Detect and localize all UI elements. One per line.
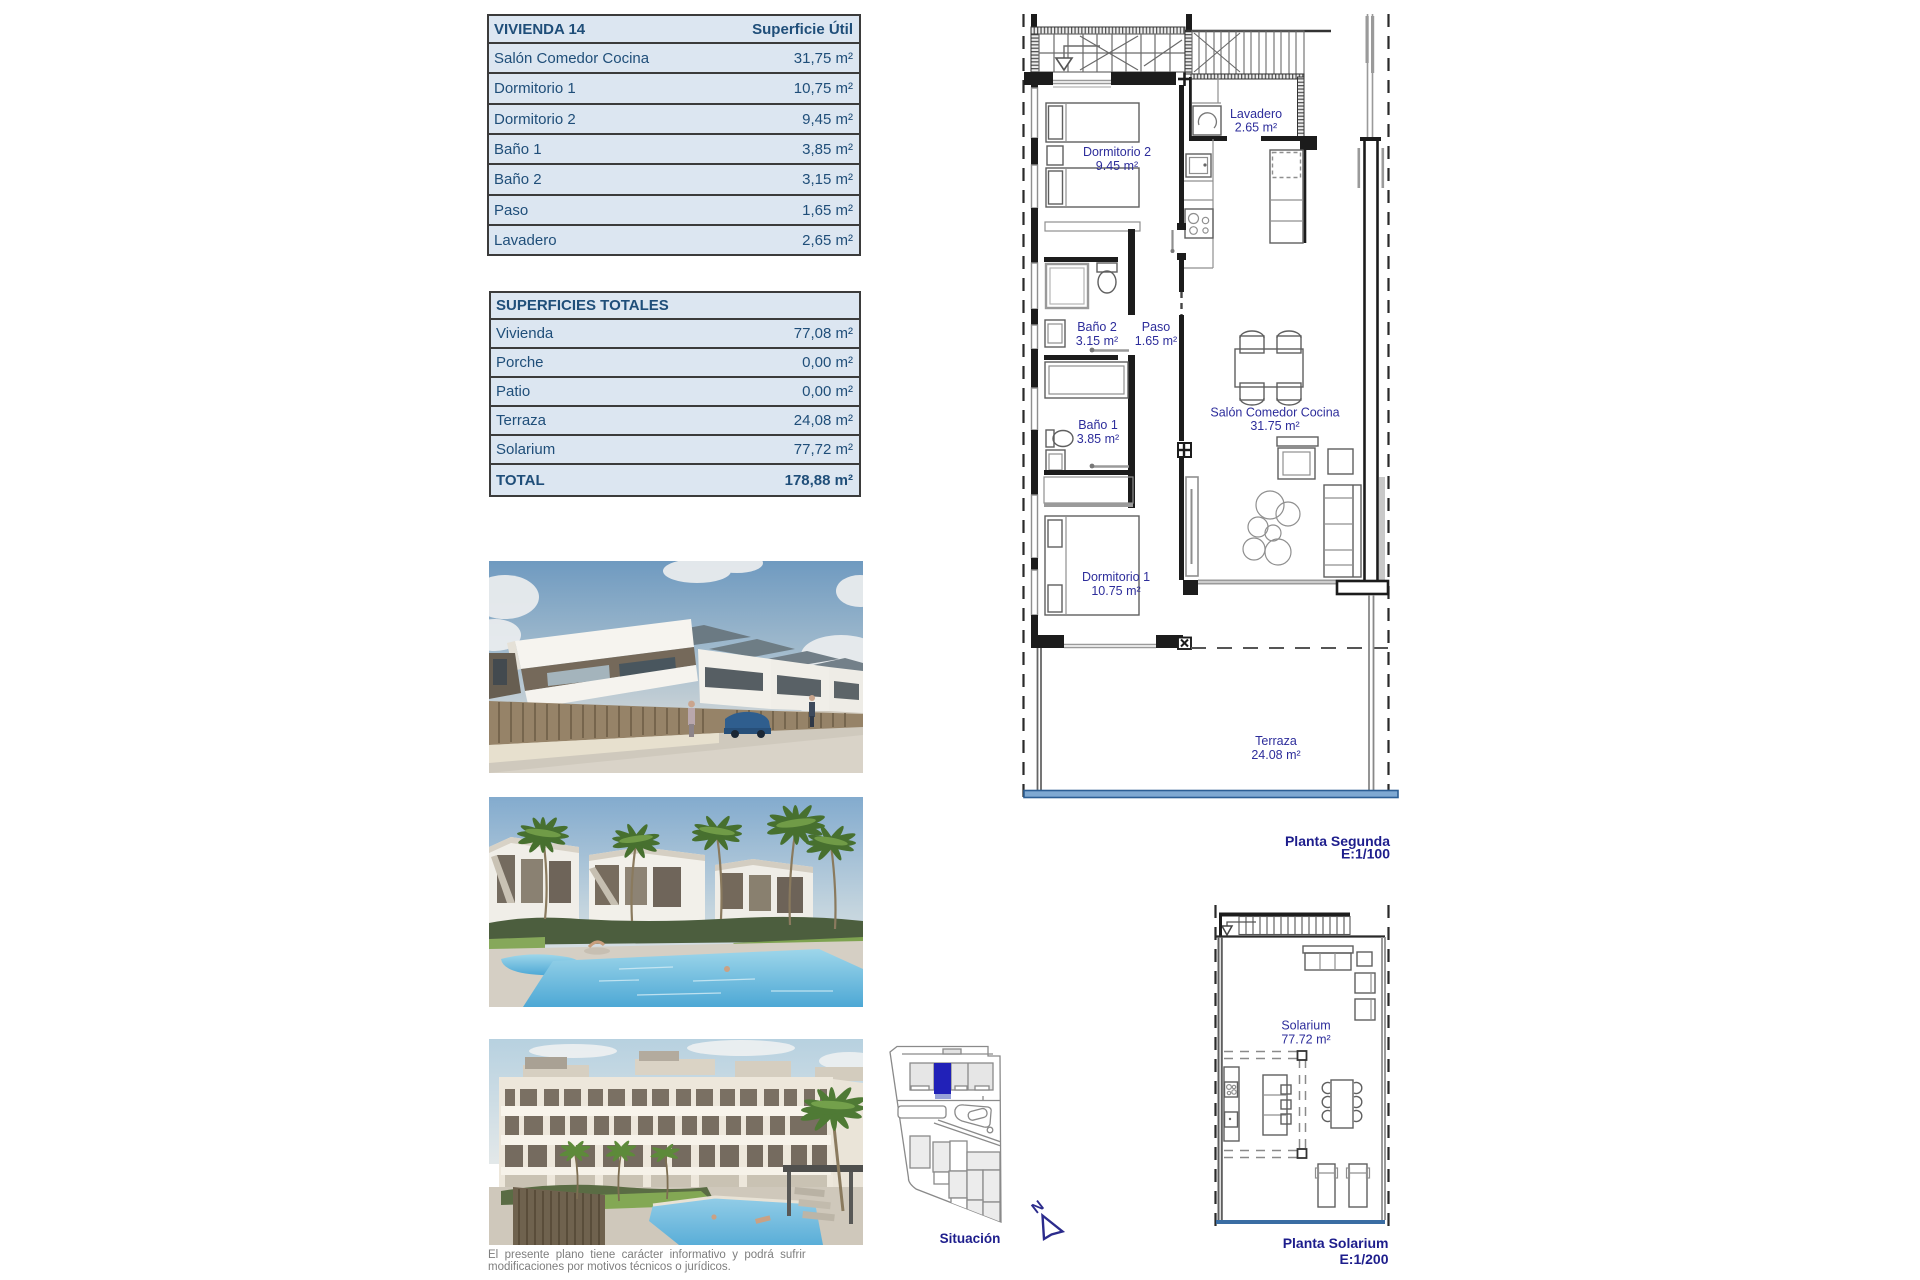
svg-text:9.45 m²: 9.45 m² — [1096, 159, 1138, 173]
svg-text:Dormitorio 2: Dormitorio 2 — [1083, 145, 1151, 159]
svg-text:10.75 m²: 10.75 m² — [1091, 584, 1140, 598]
svg-text:Planta Solarium: Planta Solarium — [1283, 1235, 1389, 1251]
svg-text:N: N — [1028, 1197, 1047, 1217]
svg-text:3.85 m²: 3.85 m² — [1077, 432, 1119, 446]
svg-text:Solarium: Solarium — [1281, 1019, 1330, 1033]
svg-text:Dormitorio 1: Dormitorio 1 — [1082, 570, 1150, 584]
svg-text:Situación: Situación — [940, 1231, 1001, 1246]
svg-text:Baño 2: Baño 2 — [1077, 320, 1117, 334]
svg-text:E:1/100: E:1/100 — [1341, 846, 1390, 862]
svg-text:Lavadero: Lavadero — [1230, 107, 1282, 121]
svg-text:Baño 1: Baño 1 — [1078, 418, 1118, 432]
svg-text:E:1/200: E:1/200 — [1339, 1251, 1388, 1267]
svg-text:Terraza: Terraza — [1255, 734, 1297, 748]
svg-text:1.65 m²: 1.65 m² — [1135, 334, 1177, 348]
svg-text:77.72 m²: 77.72 m² — [1281, 1033, 1330, 1047]
svg-text:Salón Comedor Cocina: Salón Comedor Cocina — [1210, 406, 1339, 420]
svg-text:Paso: Paso — [1142, 320, 1171, 334]
svg-text:3.15 m²: 3.15 m² — [1076, 334, 1118, 348]
svg-text:24.08 m²: 24.08 m² — [1251, 748, 1300, 762]
svg-text:31.75 m²: 31.75 m² — [1250, 419, 1299, 433]
svg-text:2.65 m²: 2.65 m² — [1235, 121, 1277, 135]
